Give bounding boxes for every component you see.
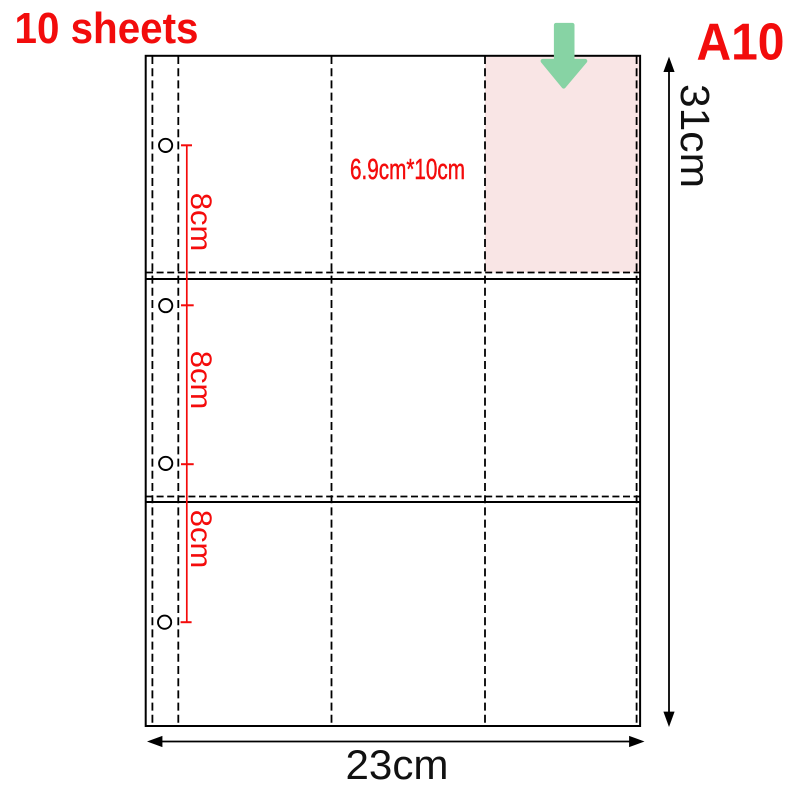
svg-text:A10: A10: [697, 14, 785, 72]
svg-text:23cm: 23cm: [346, 741, 449, 788]
svg-text:8cm: 8cm: [184, 351, 217, 410]
svg-text:8cm: 8cm: [184, 510, 217, 569]
svg-text:10 sheets: 10 sheets: [15, 4, 199, 53]
svg-text:31cm: 31cm: [672, 84, 718, 188]
svg-text:8cm: 8cm: [184, 193, 217, 252]
svg-text:6.9cm*10cm: 6.9cm*10cm: [350, 154, 465, 186]
